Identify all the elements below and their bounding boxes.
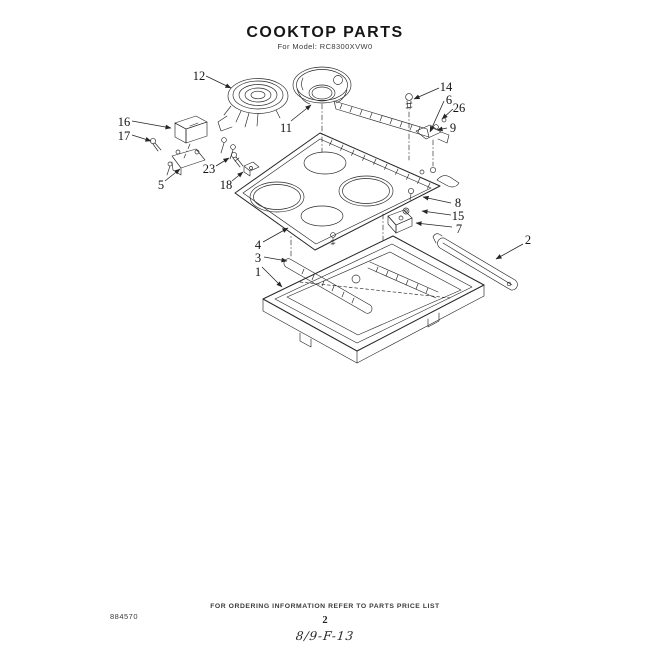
ordering-note: FOR ORDERING INFORMATION REFER TO PARTS … (0, 603, 650, 610)
callout-18: 18 (220, 178, 233, 192)
callout-1: 1 (255, 265, 261, 279)
callout-3: 3 (255, 251, 261, 265)
callout-4: 4 (255, 238, 262, 252)
part-cross-rail (284, 236, 372, 313)
callout-7: 7 (456, 222, 462, 236)
callout-5: 5 (158, 178, 164, 192)
callout-23: 23 (203, 162, 216, 176)
callout-16: 16 (118, 115, 131, 129)
callout-2: 2 (525, 233, 531, 247)
callout-12: 12 (193, 69, 206, 83)
part-rear-trim-strip (334, 101, 429, 137)
exploded-parts-diagram: 12 11 14 6 26 9 16 17 5 23 18 8 15 7 2 4… (0, 0, 650, 650)
fastener-group-right (388, 176, 459, 233)
callout-9: 9 (450, 121, 456, 135)
callout-17: 17 (118, 129, 131, 143)
callout-8: 8 (455, 196, 461, 210)
part-switch-box (150, 116, 207, 175)
handwritten-ref: 8/9-F-13 (0, 629, 650, 643)
page-number: 2 (0, 615, 650, 626)
fastener-group-left (231, 152, 259, 176)
part-coil-element (218, 79, 288, 160)
screw-front-rail (331, 233, 336, 245)
callout-6: 6 (446, 93, 452, 107)
callout-14: 14 (440, 80, 453, 94)
fastener-group-rear (406, 94, 449, 174)
doc-number: 884570 (110, 612, 138, 621)
part-main-top (235, 133, 440, 250)
callout-26: 26 (453, 101, 466, 115)
part-drip-bowl (293, 67, 351, 104)
manual-page: COOKTOP PARTS For Model: RC8300XVW0 (0, 0, 650, 650)
callout-11: 11 (280, 121, 292, 135)
callout-15: 15 (452, 209, 465, 223)
